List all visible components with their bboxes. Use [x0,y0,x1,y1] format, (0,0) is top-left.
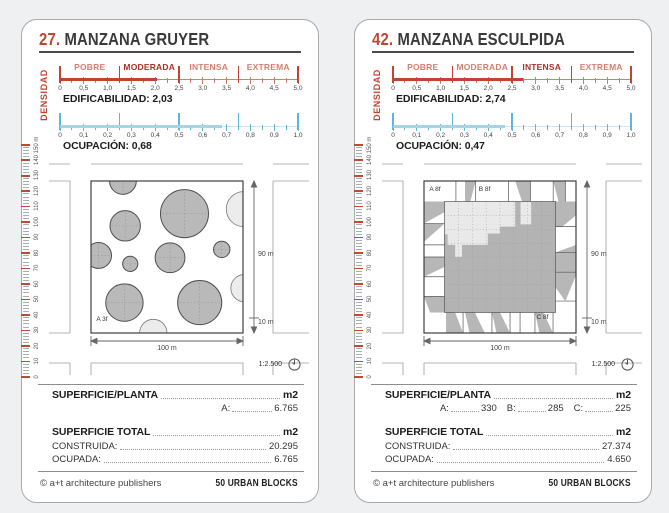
planta-entry: A:330 [440,403,497,414]
ruler-major-tick [354,144,363,146]
gauge-tick-label: 0 [50,132,70,139]
dim-arrow-right [237,338,243,343]
ruler-minor-tick [356,280,362,281]
ruler-minor-tick [356,292,362,293]
ruler-minor-tick [23,311,29,312]
ruler-minor-tick [23,240,29,241]
ruler-major-tick [21,345,30,347]
card-number: 27. [39,29,60,49]
gauge-tick [250,124,251,131]
ruler-major-tick [354,237,363,239]
gruyer-circles [86,168,262,347]
gauge-tick [262,78,263,83]
gauge-category-label: EXTREMA [238,62,298,72]
ruler-minor-tick [23,224,29,225]
planta-entry: C:225 [574,403,631,414]
ruler-minor-tick [356,172,362,173]
ruler-minor-tick [23,163,29,164]
ruler-minor-tick [23,373,29,374]
ruler-minor-tick [356,243,362,244]
ruler-minor-tick [23,286,29,287]
gauge-tick-label: 1,5 [454,85,474,92]
gauge-tick-label: 0,1 [74,132,94,139]
gauge-bound-tick [571,113,573,130]
superficie-total-header: SUPERFICIE TOTAL m2 [52,426,298,438]
sculpted-wedge [424,224,445,242]
ocupada-row: OCUPADA: 6.765 [52,454,298,465]
ruler-minor-tick [356,305,362,306]
gauge-tick [595,125,596,130]
ruler-minor-tick [23,357,29,358]
ruler-minor-tick [356,228,362,229]
ruler-minor-tick [356,249,362,250]
gauge-tick-label: 1,5 [121,85,141,92]
ruler-minor-tick [356,169,362,170]
ruler-minor-tick [23,255,29,256]
ruler-major-tick [354,283,363,285]
gauge-value-bar [60,78,157,82]
gauge-category-label: MODERADA [452,62,512,72]
ruler-minor-tick [23,308,29,309]
ruler-minor-tick [356,364,362,365]
gauge-tick-label: 4,0 [240,85,260,92]
ruler-major-tick [354,345,363,347]
sculpted-wedge [424,202,445,224]
ruler-minor-tick [356,215,362,216]
gauge-bound-tick [630,113,632,130]
dim-arrow-left [91,338,97,343]
ruler-minor-tick [23,156,29,157]
dotted-leader [518,411,546,412]
ruler-major-tick [354,376,363,378]
ruler-minor-tick [356,367,362,368]
ruler-major-tick [354,159,363,161]
gauge-tick-label: 4,0 [573,85,593,92]
superficie-total-header: SUPERFICIE TOTAL m2 [385,426,631,438]
ruler-minor-tick [356,333,362,334]
ruler-minor-tick [356,187,362,188]
dim-street-label: 10 m [591,319,607,326]
gauge-tick [607,77,608,84]
sculpted-wedge [555,245,576,301]
ruler-minor-tick [23,200,29,201]
ruler-minor-tick [356,200,362,201]
ruler-minor-tick [23,327,29,328]
gauge-tick [619,125,620,130]
block-label: A 3f [96,316,107,323]
ruler-major-tick [21,175,30,177]
ruler-minor-tick [356,354,362,355]
ruler-minor-tick [23,333,29,334]
ruler-minor-tick [356,357,362,358]
courtyard-circle [110,211,140,241]
gauge-tick-label: 1,0 [288,132,308,139]
publisher-credit: © a+t architecture publishers [373,478,494,489]
gauge-tick-label: 0,5 [74,85,94,92]
entry-key: C: [574,403,584,414]
dim-street-label: 10 m [258,319,274,326]
dotted-leader [437,462,604,463]
series-title: 50 URBAN BLOCKS [216,477,298,489]
gauge-tick-label: 0,6 [193,132,213,139]
ruler-minor-tick [356,339,362,340]
ruler-minor-tick [23,228,29,229]
ruler-minor-tick [356,327,362,328]
dotted-leader [161,398,280,399]
gauge-tick [619,78,620,83]
gauge-tick-label: 0,2 [431,132,451,139]
ruler-minor-tick [23,262,29,263]
superficie-planta-header: SUPERFICIE/PLANTA m2 [385,389,631,401]
ruler-major-tick [354,221,363,223]
dim-arrow-up [584,181,589,187]
gauge-tick [535,124,536,131]
dim-arrow-up [251,181,256,187]
ruler-minor-tick [23,265,29,266]
ruler-minor-tick [356,209,362,210]
ruler-minor-tick [23,231,29,232]
sculpted-wedge [446,312,463,333]
gauge-tick-label: 0,9 [264,132,284,139]
dotted-leader [585,411,613,412]
gauge-tick [202,77,203,84]
ocupacion-value: OCUPACIÓN: 0,68 [63,140,152,152]
ruler-minor-tick [23,323,29,324]
gauge-tick-label: 4,5 [597,85,617,92]
dotted-leader [451,411,479,412]
title-rule [372,51,634,53]
gauge-tick-label: 1,0 [98,85,118,92]
dotted-leader [232,411,272,412]
card-title-text: MANZANA GRUYER [64,29,209,49]
ruler-major-tick [21,314,30,316]
ruler-minor-tick [23,218,29,219]
ruler-minor-tick [23,243,29,244]
table-separator [38,384,304,385]
ruler-major-tick [21,159,30,161]
ruler-minor-tick [356,150,362,151]
ruler-minor-tick [23,364,29,365]
ruler-label: 150 m [34,134,42,156]
ruler-major-tick [354,314,363,316]
ruler-minor-tick [23,277,29,278]
ruler-minor-tick [23,370,29,371]
dim-width-label: 100 m [137,345,197,352]
ruler-minor-tick [356,234,362,235]
map-scale-note: 1:2.500 [228,361,282,368]
edificabilidad-value: EDIFICABILIDAD: 2,03 [63,93,172,105]
gauge-bound-tick [297,113,299,130]
ruler-minor-tick [356,373,362,374]
gauge-tick-label: 0,5 [169,132,189,139]
ocupacion-value: OCUPACIÓN: 0,47 [396,140,485,152]
gauge-tick-label: 0,4 [478,132,498,139]
entry-value: 330 [481,403,497,414]
ruler-major-tick [354,330,363,332]
ruler-minor-tick [23,367,29,368]
ruler-major-tick [21,330,30,332]
ruler-minor-tick [356,271,362,272]
ruler-minor-tick [356,218,362,219]
gauge-tick [274,124,275,131]
gauge-value-bar [60,125,222,129]
superficie-planta-entries: A:330B:285C:225 [385,403,631,414]
ruler-minor-tick [23,187,29,188]
ruler-minor-tick [356,153,362,154]
courtyard-circle [123,256,138,271]
gauge-tick-label: 0,3 [454,132,474,139]
ruler-minor-tick [356,286,362,287]
gauge-category-label: MODERADA [119,62,179,72]
ruler-minor-tick [356,262,362,263]
ruler-minor-tick [23,193,29,194]
planta-entry: B:285 [507,403,564,414]
densidad-label: DENSIDAD [372,64,382,126]
gauge-tick [226,77,227,84]
gauge-tick-label: 5,0 [288,85,308,92]
gauge-tick [214,78,215,83]
dotted-leader [153,435,280,436]
ruler-minor-tick [356,231,362,232]
sculpted-wedge [553,181,565,202]
dotted-leader [494,398,613,399]
gauge-tick [547,125,548,130]
gauge-tick-label: 0,5 [407,85,427,92]
card-manzana-esculpida: 42.MANZANA ESCULPIDA DENSIDAD 00,51,01,5… [354,19,652,503]
ruler-major-tick [21,299,30,301]
sculpted-wedge [515,181,530,202]
ruler-minor-tick [356,156,362,157]
ruler-minor-tick [356,351,362,352]
ruler-minor-tick [23,150,29,151]
ruler-minor-tick [356,274,362,275]
construida-row: CONSTRUIDA: 27.374 [385,441,631,452]
gauge-tick-label: 0,1 [407,132,427,139]
gauge-tick [226,124,227,131]
dim-height-label: 90 m [258,251,274,258]
gauge-tick [547,78,548,83]
gauge-bound-tick [238,113,240,130]
dotted-leader [486,435,613,436]
gauge-tick-label: 0,7 [217,132,237,139]
card-title: 27.MANZANA GRUYER [39,29,209,50]
ruler-minor-tick [356,255,362,256]
ruler-minor-tick [23,271,29,272]
ruler-major-tick [21,268,30,270]
dim-height-label: 90 m [591,251,607,258]
ruler-minor-tick [356,348,362,349]
title-rule [39,51,301,53]
ruler-major-tick [354,175,363,177]
publisher-credit: © a+t architecture publishers [40,478,161,489]
density-scale: 00,51,01,52,02,53,03,54,04,55,0POBREMODE… [60,62,298,94]
gauge-tick-label: 0,9 [597,132,617,139]
courtyard-circle [226,192,261,227]
clock-icon [621,358,634,371]
dim-arrow-down [251,327,256,333]
ruler-major-tick [21,206,30,208]
ruler-minor-tick [23,172,29,173]
ruler-minor-tick [23,153,29,154]
ruler-minor-tick [23,249,29,250]
card-number: 42. [372,29,393,49]
ruler-minor-tick [23,215,29,216]
sculpted-wedge [465,181,476,202]
gauge-tick-label: 0 [50,85,70,92]
ruler-minor-tick [23,302,29,303]
ruler-minor-tick [356,289,362,290]
entry-value: 225 [615,403,631,414]
densidad-label: DENSIDAD [39,64,49,126]
gauge-tick-label: 3,5 [550,85,570,92]
card-footer: © a+t architecture publishers 50 URBAN B… [373,477,631,489]
gauge-tick-label: 0,3 [121,132,141,139]
planta-entry: A:6.765 [221,403,298,414]
gauge-tick-label: 4,5 [264,85,284,92]
dotted-leader [104,462,271,463]
courtyard-circle [155,243,185,273]
ruler-major-tick [21,144,30,146]
ruler-minor-tick [356,197,362,198]
ruler-minor-tick [23,212,29,213]
gauge-category-label: INTENSA [512,62,572,72]
ruler-minor-tick [356,203,362,204]
urban-blocks-cards: 27.MANZANA GRUYER DENSIDAD 00,51,01,52,0… [0,0,669,513]
ruler-major-tick [21,361,30,363]
gauge-tick-label: 0 [383,132,403,139]
card-footer: © a+t architecture publishers 50 URBAN B… [40,477,298,489]
table-separator [371,384,637,385]
gauge-value-bar [393,125,505,129]
superficie-planta-entries: A:6.765 [52,403,298,414]
gauge-tick-label: 0 [383,85,403,92]
ruler-minor-tick [356,311,362,312]
gauge-tick [250,77,251,84]
edificabilidad-value: EDIFICABILIDAD: 2,74 [396,93,505,105]
series-title: 50 URBAN BLOCKS [549,477,631,489]
dim-width-label: 100 m [470,345,530,352]
ruler-minor-tick [23,184,29,185]
ruler-minor-tick [356,178,362,179]
gauge-tick [583,124,584,131]
occupancy-scale: 00,10,20,30,40,50,60,70,80,91,0 [393,112,631,140]
ruler-minor-tick [23,203,29,204]
gauge-tick-label: 2,5 [502,85,522,92]
gauge-tick [190,78,191,83]
ruler-minor-tick [356,317,362,318]
gauge-tick-label: 0,2 [98,132,118,139]
ruler-minor-tick [356,212,362,213]
ruler-minor-tick [23,296,29,297]
gauge-tick [559,124,560,131]
ruler-minor-tick [23,342,29,343]
ruler-minor-tick [23,274,29,275]
ruler-minor-tick [23,166,29,167]
ruler-minor-tick [23,354,29,355]
gauge-value-bar [393,78,523,82]
dotted-leader [120,449,265,450]
gauge-tick-label: 2,5 [169,85,189,92]
gauge-tick-label: 2,0 [145,85,165,92]
dim-arrow-down [584,327,589,333]
ruler-minor-tick [23,320,29,321]
ruler-minor-tick [356,166,362,167]
ruler-minor-tick [23,351,29,352]
dim-arrow-right [570,338,576,343]
gauge-tick [262,125,263,130]
ruler-minor-tick [356,342,362,343]
gauge-tick-label: 0,8 [573,132,593,139]
ruler-minor-tick [356,277,362,278]
ruler-major-tick [21,376,30,378]
ruler-minor-tick [356,302,362,303]
ruler-minor-tick [356,296,362,297]
ruler-minor-tick [23,336,29,337]
sculpted-wedge [424,297,445,313]
entry-key: A: [221,403,230,414]
sculpted-wedge [424,257,445,277]
ruler-minor-tick [356,323,362,324]
gauge-tick [583,77,584,84]
ruler-minor-tick [356,240,362,241]
ruler-major-tick [354,361,363,363]
ruler-minor-tick [23,178,29,179]
ruler-major-tick [21,221,30,223]
gauge-tick-label: 2,0 [478,85,498,92]
gauge-tick-label: 1,0 [431,85,451,92]
gauge-tick-label: 0,7 [550,132,570,139]
gauge-tick-label: 1,0 [621,132,641,139]
gauge-tick [535,77,536,84]
gauge-tick [274,77,275,84]
gauge-tick-label: 3,5 [217,85,237,92]
ruler-minor-tick [23,280,29,281]
ruler-minor-tick [23,169,29,170]
ruler-minor-tick [23,197,29,198]
ruler-minor-tick [356,320,362,321]
density-scale: 00,51,01,52,02,53,03,54,04,55,0POBREMODE… [393,62,631,94]
block-label: B 8f [479,186,491,193]
gauge-category-label: EXTREMA [571,62,631,72]
ruler-minor-tick [23,339,29,340]
gauge-tick [167,78,168,83]
gauge-tick-label: 0,6 [526,132,546,139]
ruler-minor-tick [356,246,362,247]
ruler-major-tick [21,283,30,285]
gauge-tick [523,125,524,130]
ruler-minor-tick [356,308,362,309]
ruler-major-tick [21,252,30,254]
gauge-tick [595,78,596,83]
ruler-major-tick [21,237,30,239]
ruler-minor-tick [356,193,362,194]
gauge-tick [286,125,287,130]
gauge-tick-label: 0,5 [502,132,522,139]
construida-row: CONSTRUIDA: 20.295 [52,441,298,452]
ruler-minor-tick [23,246,29,247]
ruler-major-tick [354,252,363,254]
sculpted-wedge [465,312,485,333]
dim-arrow-left [424,338,430,343]
card-title-text: MANZANA ESCULPIDA [397,29,565,49]
ruler-minor-tick [356,184,362,185]
ruler-minor-tick [356,163,362,164]
entry-key: B: [507,403,516,414]
ocupada-row: OCUPADA: 4.650 [385,454,631,465]
footer-separator [38,471,304,472]
ruler-minor-tick [23,147,29,148]
gauge-category-label: INTENSA [179,62,239,72]
